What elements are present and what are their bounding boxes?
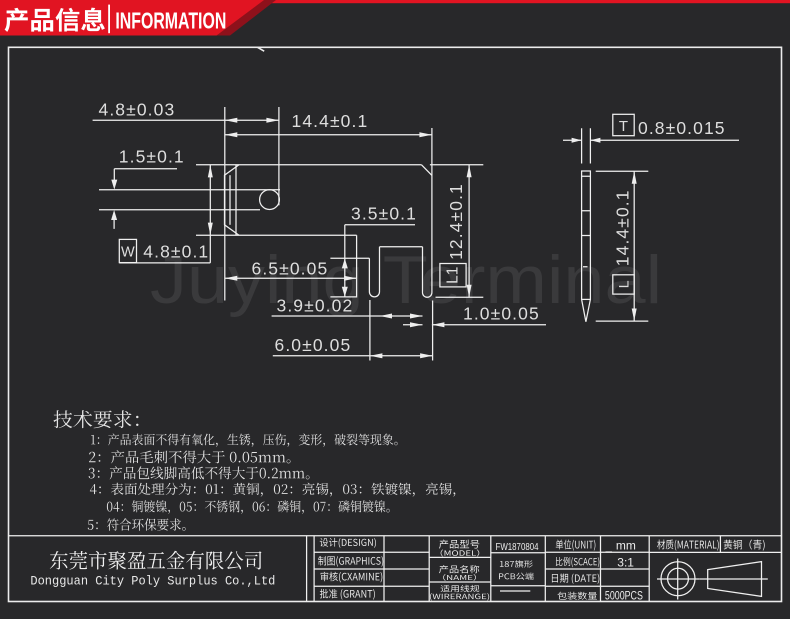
svg-text:14.4±0.1: 14.4±0.1 — [292, 111, 369, 131]
svg-text:Dongguan City Poly Surplus Co.: Dongguan City Poly Surplus Co.,Ltd — [30, 574, 275, 588]
svg-text:1.0±0.05: 1.0±0.05 — [463, 304, 540, 324]
svg-text:5000PCS: 5000PCS — [605, 591, 643, 603]
svg-text:Juying Terminal: Juying Terminal — [150, 242, 662, 318]
svg-text:L1: L1 — [445, 267, 462, 284]
svg-text:6.0±0.05: 6.0±0.05 — [275, 335, 352, 355]
svg-text:1.5±0.1: 1.5±0.1 — [119, 147, 185, 167]
svg-text:L: L — [616, 280, 632, 288]
svg-text:14.4±0.1: 14.4±0.1 — [612, 189, 632, 266]
svg-text:3.9±0.02: 3.9±0.02 — [277, 296, 354, 316]
svg-text:3.5±0.1: 3.5±0.1 — [351, 204, 417, 224]
svg-text:FW1870804: FW1870804 — [496, 542, 539, 553]
svg-text:INFORMATION: INFORMATION — [115, 8, 226, 34]
svg-text:mm: mm — [616, 538, 636, 552]
svg-text:6.5±0.05: 6.5±0.05 — [252, 259, 329, 279]
svg-text:T: T — [619, 118, 628, 135]
svg-text:W: W — [121, 245, 135, 261]
svg-text:0.8±0.015: 0.8±0.015 — [638, 118, 726, 138]
svg-text:12.4±0.1: 12.4±0.1 — [446, 183, 466, 260]
svg-text:3:1: 3:1 — [617, 556, 634, 570]
svg-text:4.8±0.1: 4.8±0.1 — [143, 242, 209, 262]
svg-text:4.8±0.03: 4.8±0.03 — [99, 100, 176, 120]
